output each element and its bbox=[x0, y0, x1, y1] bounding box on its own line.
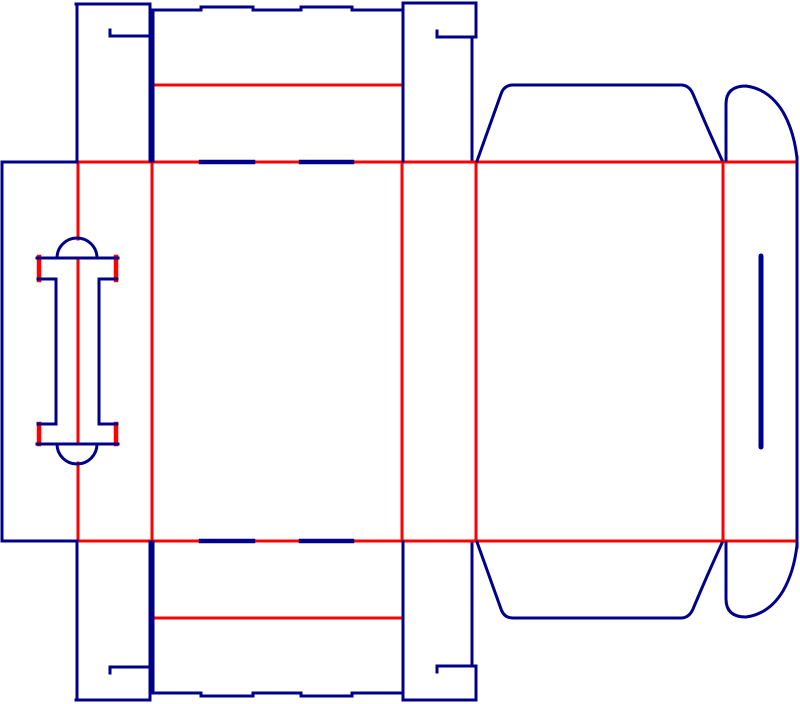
dieline-diagram bbox=[0, 0, 800, 704]
bottom-round-flap-outline bbox=[726, 543, 797, 617]
bottom-cover-flap-notched-edge bbox=[152, 693, 403, 696]
handle-bottom-arch bbox=[57, 444, 97, 464]
top-round-flap-outline bbox=[726, 86, 797, 160]
top-dust-flap-outline bbox=[477, 85, 722, 161]
handle-top-arch bbox=[57, 238, 97, 258]
dieline-page bbox=[0, 0, 800, 704]
top-cover-flap-notched-edge bbox=[152, 7, 403, 10]
bottom-dust-flap-outline bbox=[477, 542, 722, 618]
